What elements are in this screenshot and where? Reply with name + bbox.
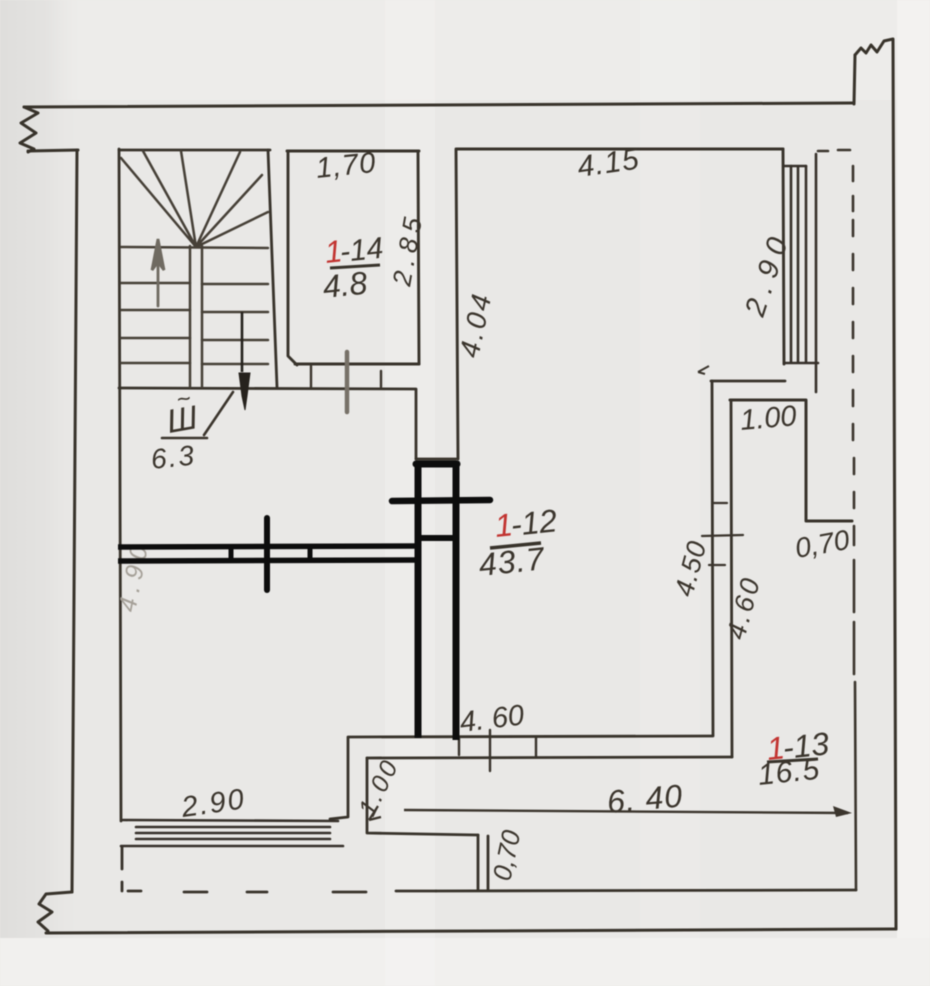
svg-text:16.5: 16.5 [756,753,821,792]
svg-text:6. 40: 6. 40 [605,777,684,820]
svg-text:6.3: 6.3 [149,439,197,475]
svg-text:43.7: 43.7 [477,540,547,583]
svg-text:-14: -14 [338,232,385,269]
svg-text:-12: -12 [509,502,559,543]
svg-text:4.8: 4.8 [321,264,369,304]
svg-text:1,70: 1,70 [314,147,377,185]
svg-text:1.00: 1.00 [739,400,798,437]
